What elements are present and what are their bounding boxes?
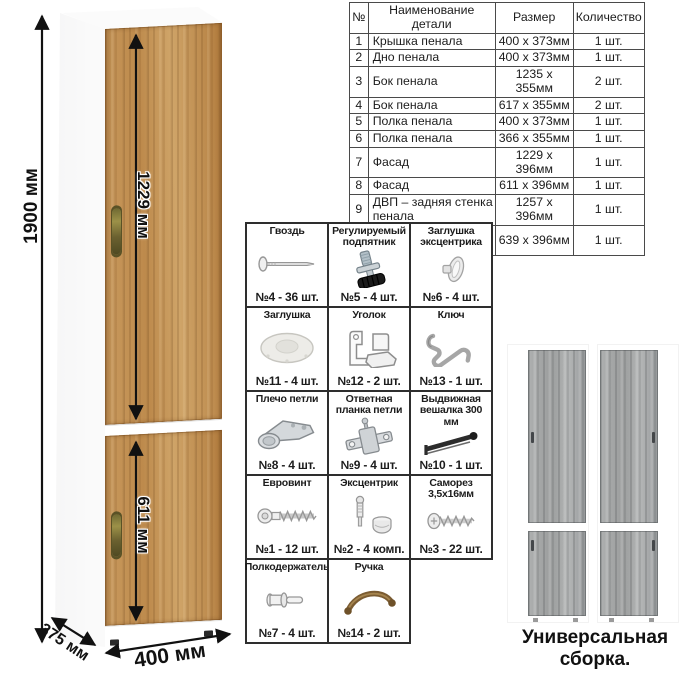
table-cell: 9 <box>350 195 369 226</box>
hardware-qty: №3 - 22 шт. <box>419 542 482 556</box>
table-cell: 7 <box>350 147 369 178</box>
variant-door-handle <box>531 432 534 443</box>
variant-door-handle <box>652 432 655 443</box>
table-cell: Полка пенала <box>368 131 495 148</box>
hardware-cell-plug-cap: Заглушка №11 - 4 шт. <box>245 306 329 392</box>
table-cell: 400 x 373мм <box>495 33 573 50</box>
table-row: 5Полка пенала400 x 373мм1 шт. <box>350 114 645 131</box>
table-cell: 2 шт. <box>573 97 644 114</box>
hardware-qty: №4 - 36 шт. <box>255 290 318 304</box>
parts-table: № Наименование детали Размер Количество … <box>349 2 645 256</box>
variant-lower-door <box>600 531 658 616</box>
hardware-row: Гвоздь №4 - 36 шт. Регулируемый подпятни… <box>245 222 493 308</box>
table-cell: 2 шт. <box>573 67 644 98</box>
table-row: 4Бок пенала617 x 355мм2 шт. <box>350 97 645 114</box>
table-cell: 400 x 373мм <box>495 114 573 131</box>
hardware-name: Заглушка эксцентрика <box>412 226 490 249</box>
table-cell: 1 шт. <box>573 114 644 131</box>
upper-door <box>105 23 222 425</box>
variant-foot <box>649 618 654 622</box>
hardware-row: Заглушка №11 - 4 шт. Уголок <box>245 306 493 392</box>
dimension-lower-door-label: 611 мм <box>133 485 153 565</box>
table-cell: Бок пенала <box>368 67 495 98</box>
hardware-name: Заглушка <box>264 310 311 321</box>
hardware-cell-shelf-pin: Полкодержатель №7 - 4 шт. <box>245 558 329 644</box>
variant-foot <box>533 618 538 622</box>
table-cell: 5 <box>350 114 369 131</box>
table-row: 7Фасад1229 x 396мм1 шт. <box>350 147 645 178</box>
hardware-qty: №10 - 1 шт. <box>419 458 482 472</box>
hardware-row: Полкодержатель №7 - 4 шт. Ручка <box>245 558 493 644</box>
table-cell: 1 шт. <box>573 33 644 50</box>
corner-bracket-icon <box>340 321 398 374</box>
cabinet-foot <box>110 639 119 645</box>
table-cell: 1 шт. <box>573 147 644 178</box>
hardware-cell-handle: Ручка №14 - 2 шт. <box>327 558 411 644</box>
hardware-name: Ответная планка петли <box>330 394 408 417</box>
hardware-cell-adjustable-foot: Регулируемый подпятник №5 - 4 шт. <box>327 222 411 308</box>
table-cell: 1 шт. <box>573 131 644 148</box>
cabinet-foot <box>204 630 213 636</box>
hardware-qty: №6 - 4 шт. <box>423 290 480 304</box>
header-size: Размер <box>495 3 573 34</box>
hardware-cell-cam-cap: Заглушка эксцентрика №6 - 4 шт. <box>409 222 493 308</box>
variant-cabinet-left <box>507 344 589 623</box>
table-cell: 1235 x 355мм <box>495 67 573 98</box>
screw-icon <box>424 501 478 542</box>
header-part-name: Наименование детали <box>368 3 495 34</box>
table-cell: Бок пенала <box>368 97 495 114</box>
euro-screw-icon <box>256 489 318 542</box>
variant-cabinet-right <box>597 344 679 623</box>
adjustable-foot-icon <box>347 249 391 290</box>
assembly-sheet: 1900 мм 1229 мм 611 мм 375 мм 400 мм № Н… <box>0 0 700 683</box>
hardware-name: Уголок <box>352 310 385 321</box>
handle-icon <box>339 573 399 626</box>
table-row: 1Крышка пенала400 x 373мм1 шт. <box>350 33 645 50</box>
table-cell: 4 <box>350 97 369 114</box>
table-cell: Крышка пенала <box>368 33 495 50</box>
hardware-grid: Гвоздь №4 - 36 шт. Регулируемый подпятни… <box>245 222 493 644</box>
table-cell: Дно пенала <box>368 50 495 67</box>
plug-cap-icon <box>258 321 316 374</box>
hardware-name: Полкодержатель <box>245 562 330 573</box>
table-cell: 8 <box>350 178 369 195</box>
hardware-cell-hex-key: Ключ №13 - 1 шт. <box>409 306 493 392</box>
table-cell: 1 шт. <box>573 50 644 67</box>
table-row: 8Фасад611 x 396мм1 шт. <box>350 178 645 195</box>
table-header-row: № Наименование детали Размер Количество <box>350 3 645 34</box>
hardware-row: Плечо петли №8 - 4 шт. Ответная планка п… <box>245 390 493 476</box>
variant-upper-door <box>600 350 658 523</box>
hex-key-icon <box>422 321 480 374</box>
cam-cap-icon <box>431 249 471 290</box>
hardware-name: Эксцентрик <box>340 478 398 489</box>
parts-table-header: № Наименование детали Размер Количество <box>350 3 645 34</box>
nail-icon <box>256 237 318 290</box>
hardware-qty: №5 - 4 шт. <box>341 290 398 304</box>
variant-lower-door <box>528 531 586 616</box>
shelf-pin-icon <box>261 573 313 626</box>
table-cell: 639 x 396мм <box>495 225 573 256</box>
table-cell: 1 шт. <box>573 225 644 256</box>
pullout-hanger-icon <box>420 428 482 458</box>
hardware-qty: №11 - 4 шт. <box>256 374 319 388</box>
table-row: 9ДВП – задняя стенка пенала1257 x 396мм1… <box>350 195 645 226</box>
table-cell: Фасад <box>368 178 495 195</box>
table-cell: 1 шт. <box>573 195 644 226</box>
variant-upper-door <box>528 350 586 523</box>
hardware-qty: №12 - 2 шт. <box>337 374 400 388</box>
hardware-qty: №7 - 4 шт. <box>259 626 316 640</box>
hardware-name: Гвоздь <box>269 226 304 237</box>
table-row: 2Дно пенала400 x 373мм1 шт. <box>350 50 645 67</box>
table-cell: 366 x 355мм <box>495 131 573 148</box>
hinge-plate-icon <box>340 417 398 458</box>
table-cell: Полка пенала <box>368 114 495 131</box>
table-cell: ДВП – задняя стенка пенала <box>368 195 495 226</box>
lower-door-handle <box>112 514 121 556</box>
hardware-name: Ручка <box>355 562 384 573</box>
hardware-cell-euro-screw: Евровинт №1 - 12 шт. <box>245 474 329 560</box>
hardware-cell-nail: Гвоздь №4 - 36 шт. <box>245 222 329 308</box>
hardware-cell-screw: Саморез 3,5х16мм №3 - 22 шт. <box>409 474 493 560</box>
table-cell: 6 <box>350 131 369 148</box>
variant-foot <box>609 618 614 622</box>
table-cell: 400 x 373мм <box>495 50 573 67</box>
table-cell: 617 x 355мм <box>495 97 573 114</box>
hardware-name: Саморез 3,5х16мм <box>412 478 490 501</box>
hardware-qty: №8 - 4 шт. <box>259 458 316 472</box>
hardware-qty: №13 - 1 шт. <box>419 374 482 388</box>
hinge-arm-icon <box>256 405 318 458</box>
table-cell: 1229 x 396мм <box>495 147 573 178</box>
hardware-qty: №9 - 4 шт. <box>341 458 398 472</box>
hardware-row: Евровинт №1 - 12 шт. Эксцентрик <box>245 474 493 560</box>
lower-door <box>105 430 222 626</box>
hardware-name: Ключ <box>438 310 465 321</box>
hardware-qty: №2 - 4 комп. <box>334 542 405 556</box>
hardware-qty: №14 - 2 шт. <box>337 626 400 640</box>
hardware-cell-corner-bracket: Уголок №12 - 2 шт. <box>327 306 411 392</box>
header-quantity: Количество <box>573 3 644 34</box>
cabinet-front-face <box>105 23 222 647</box>
hardware-qty: №1 - 12 шт. <box>255 542 318 556</box>
table-row: 6Полка пенала366 x 355мм1 шт. <box>350 131 645 148</box>
header-number: № <box>350 3 369 34</box>
table-cell: 3 <box>350 67 369 98</box>
table-cell: 611 x 396мм <box>495 178 573 195</box>
table-cell: 1 шт. <box>573 178 644 195</box>
dimension-upper-door-label: 1229 мм <box>133 160 153 250</box>
hardware-cell-cam-lock: Эксцентрик №2 - 4 комп. <box>327 474 411 560</box>
universal-assembly-caption: Универсальная сборка. <box>489 627 700 671</box>
hardware-name: Выдвижная вешалка 300 мм <box>412 394 490 428</box>
hardware-name: Плечо петли <box>256 394 319 405</box>
variant-foot <box>573 618 578 622</box>
cam-lock-icon <box>341 489 397 542</box>
hardware-cell-hinge-plate: Ответная планка петли №9 - 4 шт. <box>327 390 411 476</box>
upper-door-handle <box>112 208 121 254</box>
table-cell: 2 <box>350 50 369 67</box>
dimension-height-label: 1900 мм <box>21 156 43 256</box>
hardware-cell-hinge-arm: Плечо петли №8 - 4 шт. <box>245 390 329 476</box>
table-row: 3Бок пенала1235 x 355мм2 шт. <box>350 67 645 98</box>
hardware-name: Регулируемый подпятник <box>330 226 408 249</box>
hardware-cell-pullout-hanger: Выдвижная вешалка 300 мм №10 - 1 шт. <box>409 390 493 476</box>
table-cell: 1257 x 396мм <box>495 195 573 226</box>
variant-door-handle <box>652 540 655 551</box>
table-cell: Фасад <box>368 147 495 178</box>
variant-door-handle <box>531 540 534 551</box>
table-cell: 1 <box>350 33 369 50</box>
hardware-name: Евровинт <box>263 478 312 489</box>
